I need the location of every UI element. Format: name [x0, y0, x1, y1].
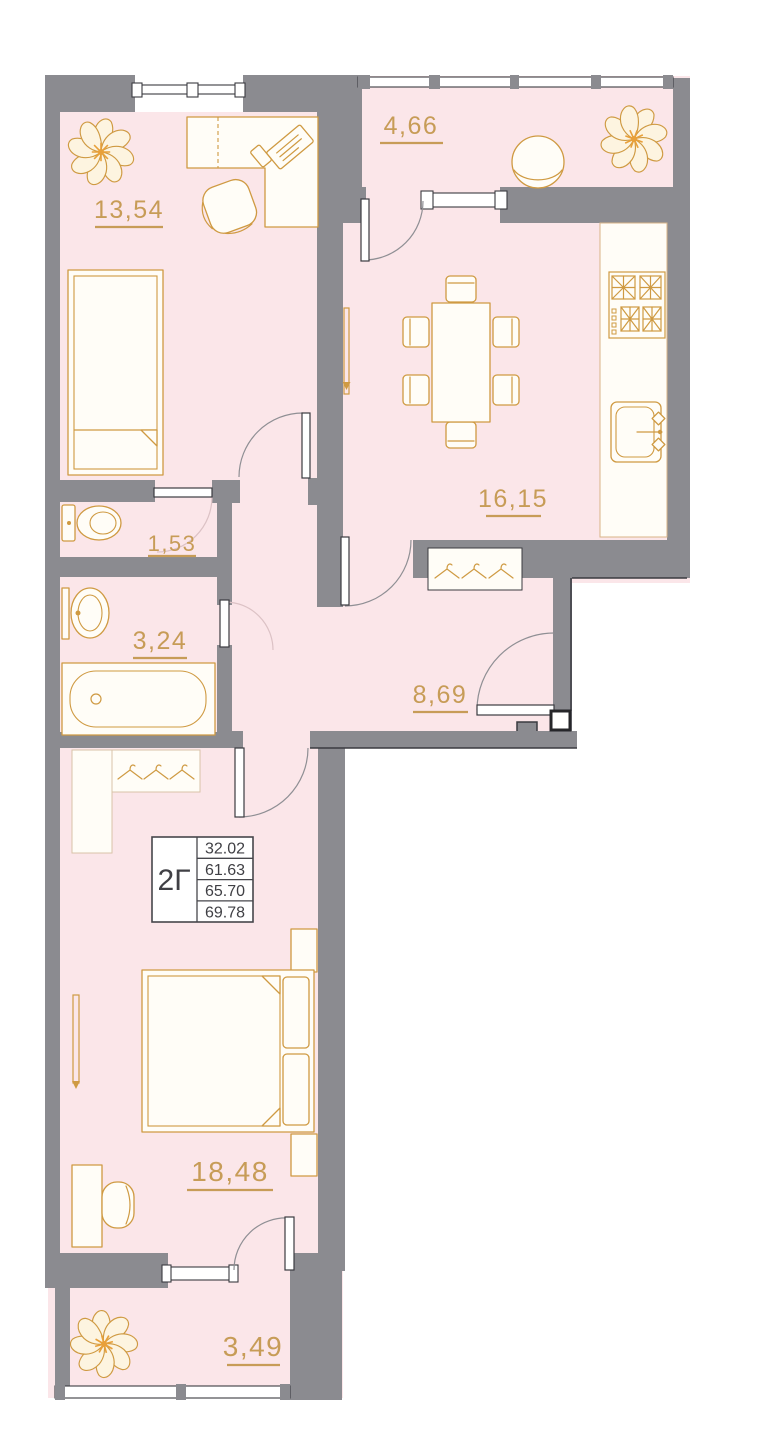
window-balcony-bottom [55, 1384, 290, 1400]
area-row-1: 61.63 [205, 862, 245, 879]
nightstand [291, 1134, 317, 1176]
room-label-18-48: 18,48 [191, 1156, 269, 1187]
room-label-1-53: 1,53 [148, 531, 197, 556]
wash-basin [62, 588, 109, 639]
room-label-3-49: 3,49 [223, 1331, 284, 1362]
area-row-3: 69.78 [205, 904, 245, 921]
nightstand [291, 929, 317, 972]
single-bed [68, 270, 163, 475]
wc-furniture [62, 505, 121, 541]
ottoman [512, 136, 564, 188]
entrance-jamb [551, 711, 570, 730]
window-balcony-top [358, 75, 673, 89]
pillow [283, 1054, 309, 1125]
window-kitchen-balcony [421, 191, 507, 209]
room-label-16-15: 16,15 [478, 485, 548, 513]
bathtub [62, 663, 215, 735]
unit-info-table: 2Г 32.02 61.63 65.70 69.78 [152, 837, 253, 922]
unit-label: 2Г [158, 864, 191, 897]
room-label-3-24: 3,24 [133, 627, 188, 655]
hallway-furniture [428, 548, 522, 590]
room-label-4-66: 4,66 [384, 112, 439, 140]
floor-plan-page: 13,54 4,66 16,15 1,53 3,24 8,69 18,48 3,… [0, 0, 763, 1455]
hall-wardrobe [428, 548, 522, 590]
window-room1 [132, 76, 245, 112]
floor-plan: 13,54 4,66 16,15 1,53 3,24 8,69 18,48 3,… [0, 0, 763, 1455]
area-row-2: 65.70 [205, 883, 245, 900]
kitchen-counter [600, 223, 667, 537]
window-bedroom-balcony [162, 1265, 238, 1282]
area-row-0: 32.02 [205, 841, 245, 858]
room-label-8-69: 8,69 [413, 681, 468, 709]
kitchen-sink [611, 402, 665, 462]
room-label-13-54: 13,54 [94, 196, 164, 224]
toilet [62, 505, 121, 541]
pillow [283, 977, 309, 1048]
